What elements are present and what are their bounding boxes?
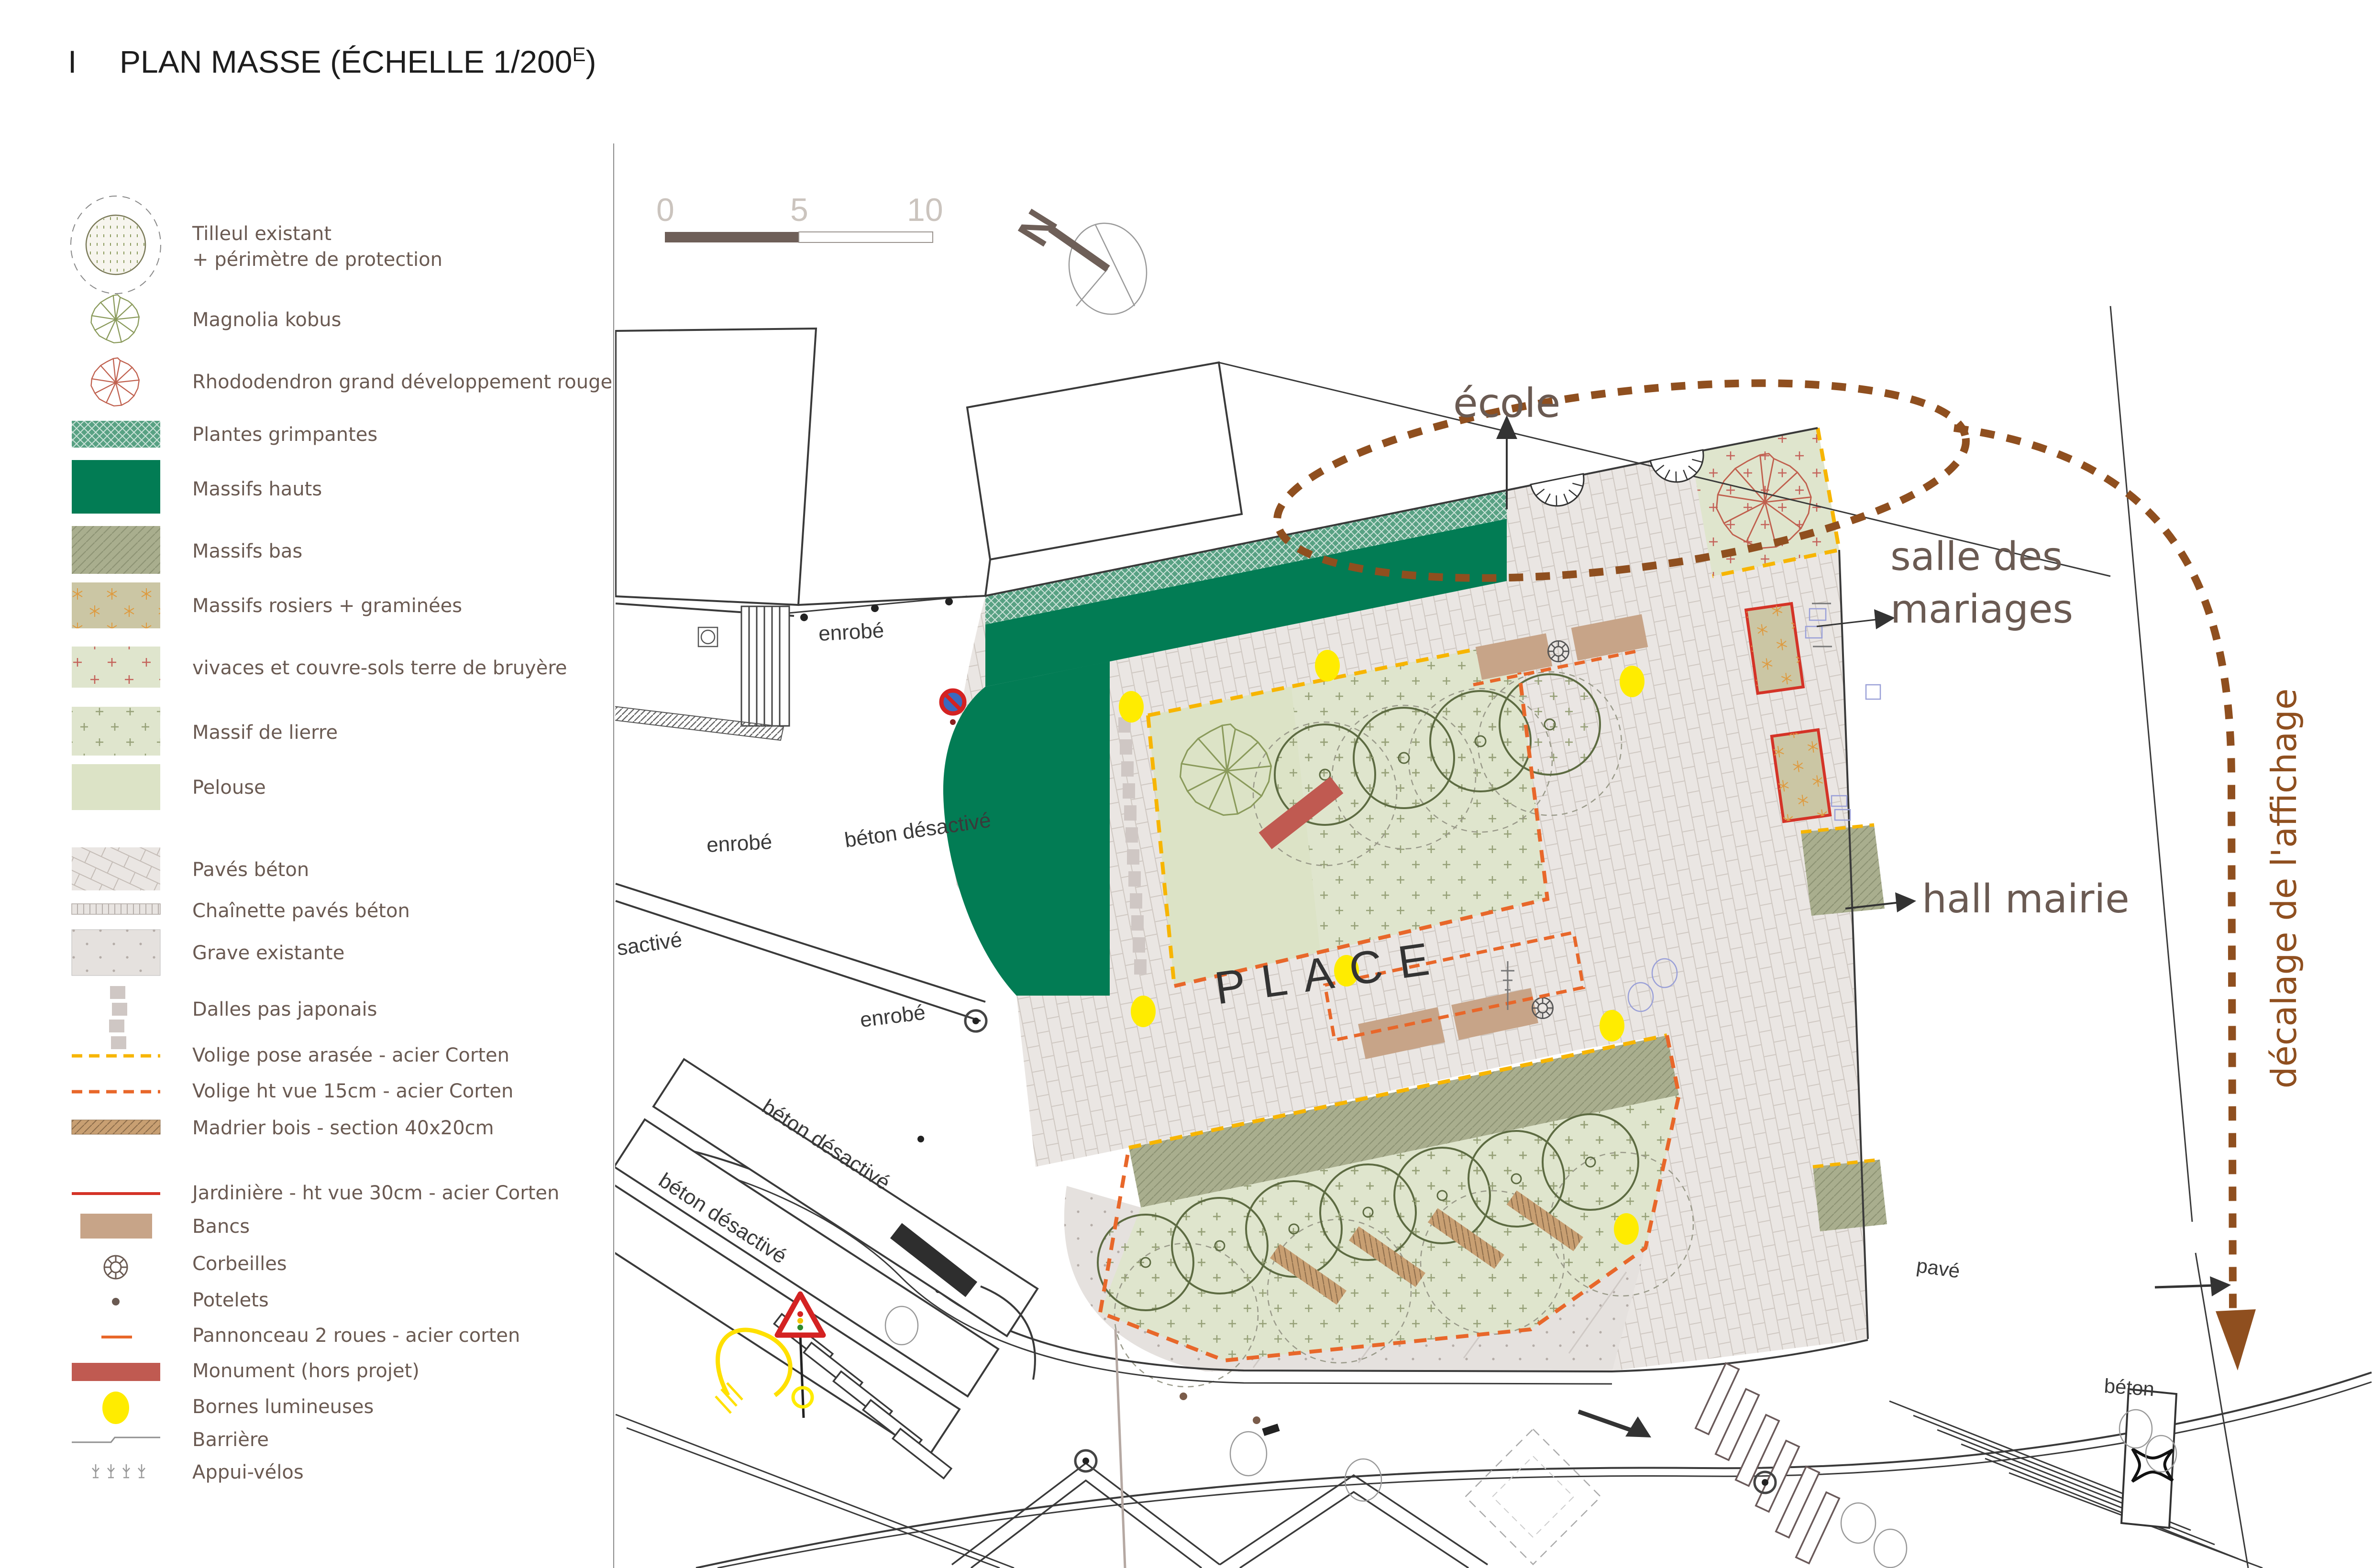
pelouse-swatch	[72, 764, 160, 810]
building-top-center	[967, 362, 1242, 559]
svg-text:Plantes grimpantes: Plantes grimpantes	[192, 424, 377, 446]
svg-text:0: 0	[656, 192, 674, 228]
plan-masse-sheet: I PLAN MASSE (ÉCHELLE 1/200E) Tilleul ex…	[0, 0, 2373, 1568]
svg-text:Jardinière - ht vue 30cm - aci: Jardinière - ht vue 30cm - acier Corten	[191, 1182, 559, 1204]
affichage-arrowhead	[2216, 1309, 2256, 1371]
crosswalk-right	[1696, 1363, 1840, 1564]
svg-text:Potelets: Potelets	[192, 1289, 269, 1311]
svg-text:hall mairie: hall mairie	[1922, 877, 2130, 922]
massif-lierre-swatch	[72, 707, 160, 756]
corbeille-icon	[104, 1256, 127, 1279]
svg-text:sactivé: sactivé	[616, 928, 684, 960]
monument-icon	[72, 1363, 160, 1381]
svg-text:Bancs: Bancs	[192, 1216, 250, 1238]
site-plan: école salle des mariages hall mairie déc…	[575, 306, 2372, 1568]
stairs-bottom-right	[1889, 1401, 2263, 1568]
barriere-icon	[72, 1437, 160, 1442]
column-bowtie	[2121, 1389, 2176, 1528]
svg-text:enrobé: enrobé	[706, 830, 773, 857]
legend: Tilleul existant + périmètre de protecti…	[71, 143, 614, 1568]
svg-text:Rhododendron grand développeme: Rhododendron grand développement rouge	[192, 371, 612, 393]
massifs-bas-swatch	[72, 526, 160, 574]
magnolia-icon	[91, 295, 139, 343]
tilleul-icon	[71, 196, 161, 294]
svg-text:Volige pose arasée - acier Cor: Volige pose arasée - acier Corten	[192, 1044, 509, 1066]
borne-icon	[102, 1392, 129, 1424]
rhododendron-square	[1691, 428, 1839, 576]
grave-swatch	[72, 930, 160, 976]
svg-text:10: 10	[907, 192, 943, 228]
svg-text:Appui-vélos: Appui-vélos	[192, 1461, 304, 1483]
svg-text:Pannonceau 2 roues - acier cor: Pannonceau 2 roues - acier corten	[192, 1325, 520, 1347]
potelet-icon	[112, 1298, 120, 1305]
svg-text:Monument (hors projet): Monument (hors projet)	[192, 1360, 419, 1382]
page-title-index: I	[68, 44, 77, 79]
svg-text:5: 5	[790, 192, 808, 228]
massifs-rosiers-swatch	[72, 582, 160, 628]
appui-velos-icon	[92, 1464, 145, 1478]
svg-text:Massifs hauts: Massifs hauts	[192, 478, 322, 500]
madrier-icon	[72, 1120, 160, 1134]
dalles-icon	[109, 986, 127, 1049]
rhododendron-icon	[91, 358, 139, 406]
svg-text:Grave existante: Grave existante	[192, 942, 344, 964]
svg-text:Chaînette pavés béton: Chaînette pavés béton	[192, 900, 410, 922]
scale-bar: 0 5 10	[656, 192, 943, 242]
dashed-building	[1466, 1429, 1601, 1565]
svg-text:Corbeilles: Corbeilles	[192, 1253, 287, 1275]
svg-text:Volige ht vue 15cm - acier Cor: Volige ht vue 15cm - acier Corten	[192, 1080, 513, 1102]
svg-text:Massifs bas: Massifs bas	[192, 540, 302, 562]
chainette-swatch	[72, 904, 160, 914]
plantes-grimpantes-swatch	[72, 421, 160, 448]
svg-text:N: N	[1009, 201, 1067, 254]
svg-text:vivaces et couvre-sols terre d: vivaces et couvre-sols terre de bruyère	[192, 657, 567, 679]
page-title: PLAN MASSE (ÉCHELLE 1/200E)	[120, 43, 596, 79]
svg-text:Dalles pas japonais: Dalles pas japonais	[192, 998, 377, 1020]
svg-text:Barrière: Barrière	[192, 1429, 269, 1451]
svg-text:mariages: mariages	[1890, 587, 2073, 632]
svg-text:enrobé: enrobé	[859, 1001, 927, 1032]
svg-text:Massifs rosiers + graminées: Massifs rosiers + graminées	[192, 595, 462, 617]
svg-text:Pavés béton: Pavés béton	[192, 859, 309, 881]
svg-text:Magnolia kobus: Magnolia kobus	[192, 309, 341, 331]
legend-label: Tilleul existant	[192, 223, 331, 245]
svg-text:école: école	[1453, 380, 1560, 427]
vivaces-swatch	[72, 647, 160, 688]
paves-beton-swatch	[72, 847, 160, 890]
svg-text:Massif de lierre: Massif de lierre	[192, 722, 338, 744]
building-top-left	[616, 329, 816, 605]
banc-icon	[80, 1214, 152, 1239]
north-arrow-icon: N	[1009, 201, 1156, 322]
svg-text:béton: béton	[2103, 1374, 2155, 1400]
legend-label: + périmètre de protection	[192, 249, 442, 271]
svg-text:décalage de l'affichage: décalage de l'affichage	[2264, 689, 2304, 1088]
svg-text:Madrier bois - section 40x20cm: Madrier bois - section 40x20cm	[192, 1117, 494, 1139]
stairs-top-left	[741, 606, 789, 726]
svg-text:salle des: salle des	[1890, 534, 2063, 580]
svg-text:pavé: pavé	[1915, 1254, 1962, 1282]
svg-text:Bornes lumineuses: Bornes lumineuses	[192, 1396, 374, 1418]
svg-text:enrobé: enrobé	[818, 619, 884, 646]
svg-text:Pelouse: Pelouse	[192, 777, 266, 799]
massifs-hauts-swatch	[72, 460, 160, 514]
